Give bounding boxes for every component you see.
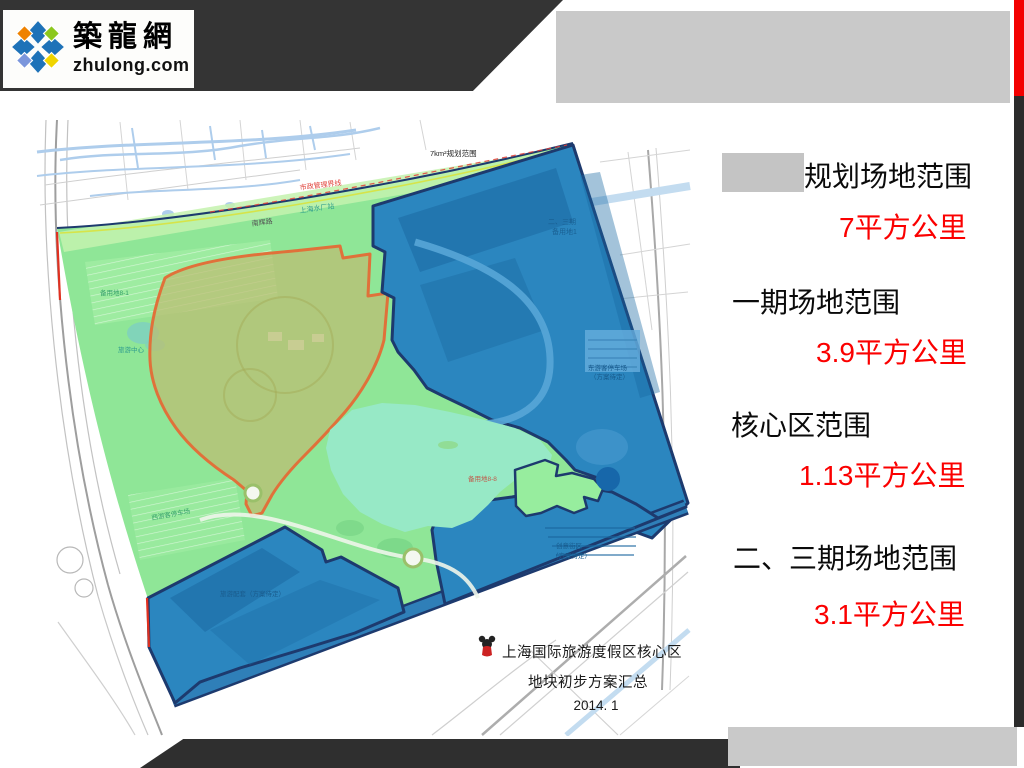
row3-value: 1.13平方公里 — [799, 462, 966, 490]
svg-text:备用地1: 备用地1 — [552, 227, 577, 236]
row4-label: 二、三期场地范围 — [733, 545, 957, 573]
row2-value: 3.9平方公里 — [816, 339, 967, 367]
slide: 築龍網 zhulong.com 规划场地范围 7平方公里 一期场地范围 3.9平… — [0, 0, 1024, 768]
svg-text:2014. 1: 2014. 1 — [573, 698, 618, 713]
row1-value: 7平方公里 — [839, 214, 967, 242]
svg-text:创意街区: 创意街区 — [556, 541, 583, 550]
svg-text:二、三期: 二、三期 — [548, 218, 576, 226]
redacted-box — [722, 153, 804, 192]
svg-text:备用地8-1: 备用地8-1 — [100, 288, 129, 297]
brand-name-en: zhulong.com — [73, 55, 190, 76]
site-plan-map: 7km²规划范围 市政管理界线 南辉路 上海水厂站 二、三期 备用地1 东游客停… — [35, 118, 691, 736]
svg-text:旅游中心: 旅游中心 — [118, 345, 145, 354]
svg-text:（方案待定）: （方案待定） — [552, 551, 591, 560]
right-red-stripe — [1014, 0, 1024, 96]
svg-text:地块初步方案汇总: 地块初步方案汇总 — [528, 673, 648, 691]
svg-text:旅游配套（方案待定）: 旅游配套（方案待定） — [220, 589, 285, 598]
row3-label: 核心区范围 — [731, 412, 871, 440]
zhulong-logo[interactable]: 築龍網 zhulong.com — [3, 10, 194, 88]
mickey-icon — [479, 636, 495, 657]
svg-text:东游客停车场: 东游客停车场 — [588, 363, 628, 372]
svg-text:7km²规划范围: 7km²规划范围 — [430, 148, 477, 158]
row4-value: 3.1平方公里 — [814, 601, 965, 629]
row2-label: 一期场地范围 — [732, 289, 900, 317]
footer-gray-bar — [728, 727, 1017, 766]
brand-name-cn: 築龍網 — [73, 23, 190, 52]
zhulong-pinwheel-icon — [11, 20, 65, 79]
right-black-stripe — [1014, 96, 1024, 727]
svg-text:上海国际旅游度假区核心区: 上海国际旅游度假区核心区 — [502, 644, 682, 661]
svg-text:（方案待定）: （方案待定） — [590, 372, 629, 381]
row1-label: 规划场地范围 — [804, 163, 972, 191]
footer-dark-band — [140, 739, 740, 768]
header-gray-bar — [556, 11, 1010, 103]
site-plan-svg: 7km²规划范围 市政管理界线 南辉路 上海水厂站 二、三期 备用地1 东游客停… — [35, 118, 691, 736]
svg-text:备用地8-8: 备用地8-8 — [468, 474, 497, 483]
